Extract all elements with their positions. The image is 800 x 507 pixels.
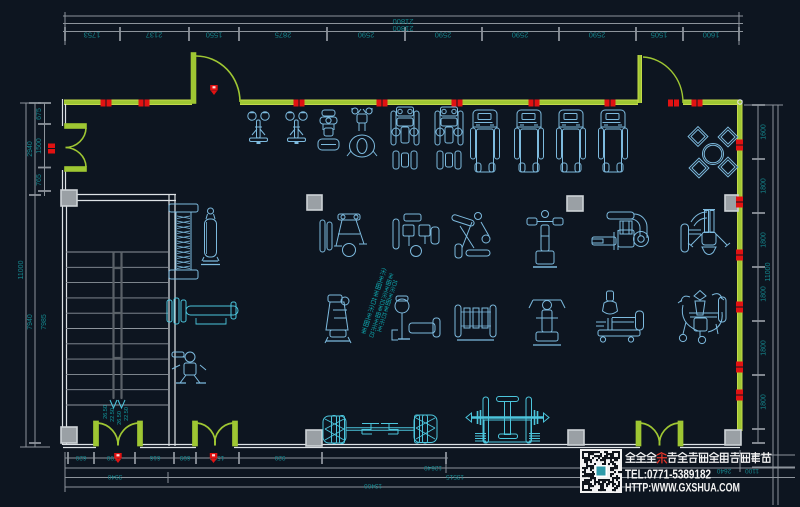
svg-text:1600: 1600 (703, 31, 720, 40)
svg-text:TEL:0771-5389182: TEL:0771-5389182 (625, 467, 711, 482)
svg-text:HTTP:WWW.GXSHUA.COM: HTTP:WWW.GXSHUA.COM (625, 481, 740, 495)
svg-text:609: 609 (179, 454, 190, 461)
svg-text:675: 675 (36, 108, 43, 120)
svg-text:2137: 2137 (146, 31, 163, 40)
svg-text:26.50: 26.50 (117, 411, 123, 425)
svg-text:22.50: 22.50 (110, 408, 116, 422)
svg-text:1800: 1800 (761, 394, 768, 410)
svg-text:2875: 2875 (275, 31, 292, 40)
svg-text:1505: 1505 (651, 31, 668, 40)
svg-text:7985: 7985 (41, 314, 48, 330)
svg-text:2590: 2590 (358, 31, 375, 40)
svg-text:1550: 1550 (206, 31, 223, 40)
svg-text:2940: 2940 (27, 141, 34, 157)
svg-text:12640: 12640 (424, 464, 442, 471)
svg-text:13515: 13515 (446, 473, 464, 480)
svg-text:765: 765 (36, 174, 43, 186)
svg-text:26.50: 26.50 (103, 405, 109, 419)
svg-text:3340: 3340 (107, 473, 122, 480)
svg-text:1600: 1600 (761, 124, 768, 140)
svg-text:22.50: 22.50 (124, 407, 130, 421)
svg-text:7940: 7940 (27, 314, 34, 330)
svg-text:2640: 2640 (716, 467, 731, 474)
svg-text:920: 920 (274, 454, 285, 461)
svg-text:13400: 13400 (364, 482, 382, 489)
svg-text:620: 620 (75, 454, 86, 461)
svg-text:2590: 2590 (435, 31, 452, 40)
svg-text:1800: 1800 (761, 340, 768, 356)
svg-text:616: 616 (149, 454, 160, 461)
svg-text:11000: 11000 (765, 262, 772, 281)
svg-text:1800: 1800 (761, 232, 768, 248)
svg-text:11000: 11000 (18, 260, 25, 279)
svg-text:1500: 1500 (36, 138, 43, 154)
svg-text:1800: 1800 (761, 286, 768, 302)
svg-text:2590: 2590 (512, 31, 529, 40)
svg-text:1100: 1100 (745, 467, 759, 474)
svg-text:2590: 2590 (589, 31, 606, 40)
svg-text:1800: 1800 (761, 178, 768, 194)
svg-text:21800: 21800 (393, 24, 414, 33)
svg-text:1753: 1753 (84, 31, 101, 40)
